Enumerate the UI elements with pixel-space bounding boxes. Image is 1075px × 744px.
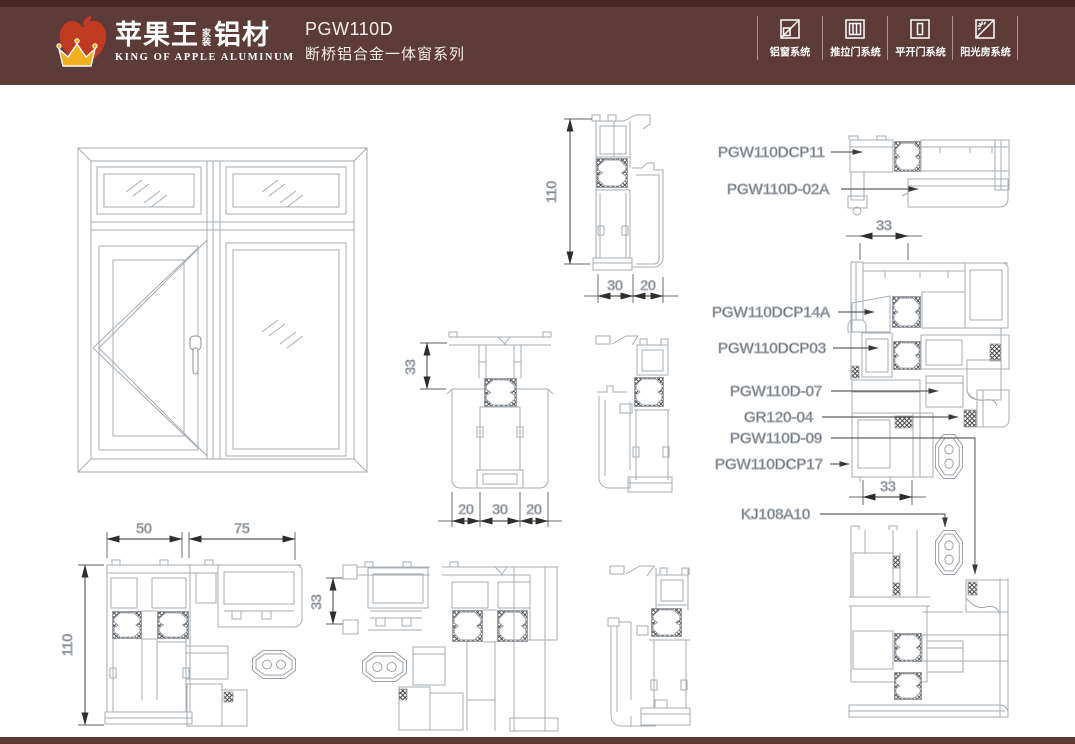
brand-name-en: KING OF APPLE ALUMINUM — [115, 52, 295, 63]
section-top-right: PGW110DCP11 PGW110D-02A — [718, 136, 1009, 215]
sys-item-window: 铝窗系统 — [757, 16, 822, 60]
part-label-pgw110d-09: PGW110D-09 — [730, 430, 822, 447]
series-model: PGW110D — [305, 19, 465, 40]
sys-label: 铝窗系统 — [770, 45, 810, 60]
section-bottom-mid-right — [608, 566, 690, 726]
section-top-middle: 110 30 20 — [543, 115, 678, 303]
drawing-area: 110 30 20 PGW110DCP — [0, 85, 1075, 737]
sys-item-casement-door: 平开门系统 — [887, 16, 952, 60]
series-title-block: PGW110D 断桥铝合金一体窗系列 — [305, 19, 465, 64]
part-label-gr120-04: GR120-04 — [744, 409, 813, 426]
dim-33-right-top: 33 — [876, 217, 892, 233]
dim-20: 20 — [640, 277, 656, 293]
dim-110-top: 110 — [543, 181, 559, 204]
brand-name-cn: 苹果王 — [115, 22, 199, 49]
part-label-kj108a10: KJ108A10 — [741, 506, 810, 523]
dim-33-bottom-middle: 33 — [308, 594, 324, 610]
dim-33-right-bottom: 33 — [880, 478, 896, 494]
section-bottom-right: KJ108A10 — [741, 506, 1008, 717]
dim-50: 50 — [136, 520, 152, 536]
part-label-pgw110dcp17: PGW110DCP17 — [715, 456, 823, 473]
sys-item-sunroom: 阳光房系统 — [952, 16, 1018, 60]
section-bottom-left: 50 75 110 — [59, 520, 302, 726]
part-label-pgw110dcp14a: PGW110DCP14A — [712, 304, 830, 321]
series-name: 断桥铝合金一体窗系列 — [305, 43, 465, 64]
dim-30-center: 30 — [492, 501, 508, 517]
part-label-pgw110dcp03: PGW110DCP03 — [718, 340, 826, 357]
sys-item-sliding-door: 推拉门系统 — [822, 16, 887, 60]
technical-drawings-canvas: 110 30 20 PGW110DCP — [0, 85, 1075, 737]
dim-110-bottom: 110 — [59, 634, 75, 657]
dim-30: 30 — [607, 277, 623, 293]
sys-label: 推拉门系统 — [830, 45, 881, 60]
part-label-pgw110d-02a: PGW110D-02A — [727, 181, 829, 198]
brand-subscript: 家装 — [202, 29, 211, 49]
dim-33-center: 33 — [402, 359, 418, 375]
footer-strip — [0, 737, 1075, 744]
apple-crown-logo-icon — [54, 14, 108, 70]
brand-text: 苹果王 家装 铝材 KING OF APPLE ALUMINUM — [115, 22, 295, 63]
casement-door-system-icon — [908, 17, 932, 41]
dim-75: 75 — [234, 520, 250, 536]
sys-label: 平开门系统 — [895, 45, 946, 60]
window-elevation-drawing — [78, 148, 367, 472]
system-nav: 铝窗系统 推拉门系统 平开门系统 阳光房系统 — [757, 16, 1018, 60]
brand-suffix: 铝材 — [214, 22, 270, 49]
catalog-page: 苹果王 家装 铝材 KING OF APPLE ALUMINUM PGW110D… — [0, 0, 1075, 744]
sunroom-system-icon — [973, 17, 997, 41]
section-center: 33 20 30 20 — [402, 332, 562, 527]
sliding-door-system-icon — [843, 17, 867, 41]
part-label-pgw110dcp11: PGW110DCP11 — [718, 144, 825, 161]
header: 苹果王 家装 铝材 KING OF APPLE ALUMINUM PGW110D… — [0, 0, 1075, 85]
header-top-strip — [0, 0, 1075, 7]
dim-20-right: 20 — [526, 501, 542, 517]
brand-logo: 苹果王 家装 铝材 KING OF APPLE ALUMINUM — [54, 14, 295, 70]
aluminum-window-system-icon — [778, 17, 802, 41]
window-handle — [190, 336, 201, 374]
dim-20-left: 20 — [458, 501, 474, 517]
section-bottom-middle: 33 — [308, 562, 558, 731]
section-center-right — [596, 336, 672, 492]
part-label-pgw110d-07: PGW110D-07 — [730, 383, 822, 400]
sys-label: 阳光房系统 — [960, 45, 1011, 60]
